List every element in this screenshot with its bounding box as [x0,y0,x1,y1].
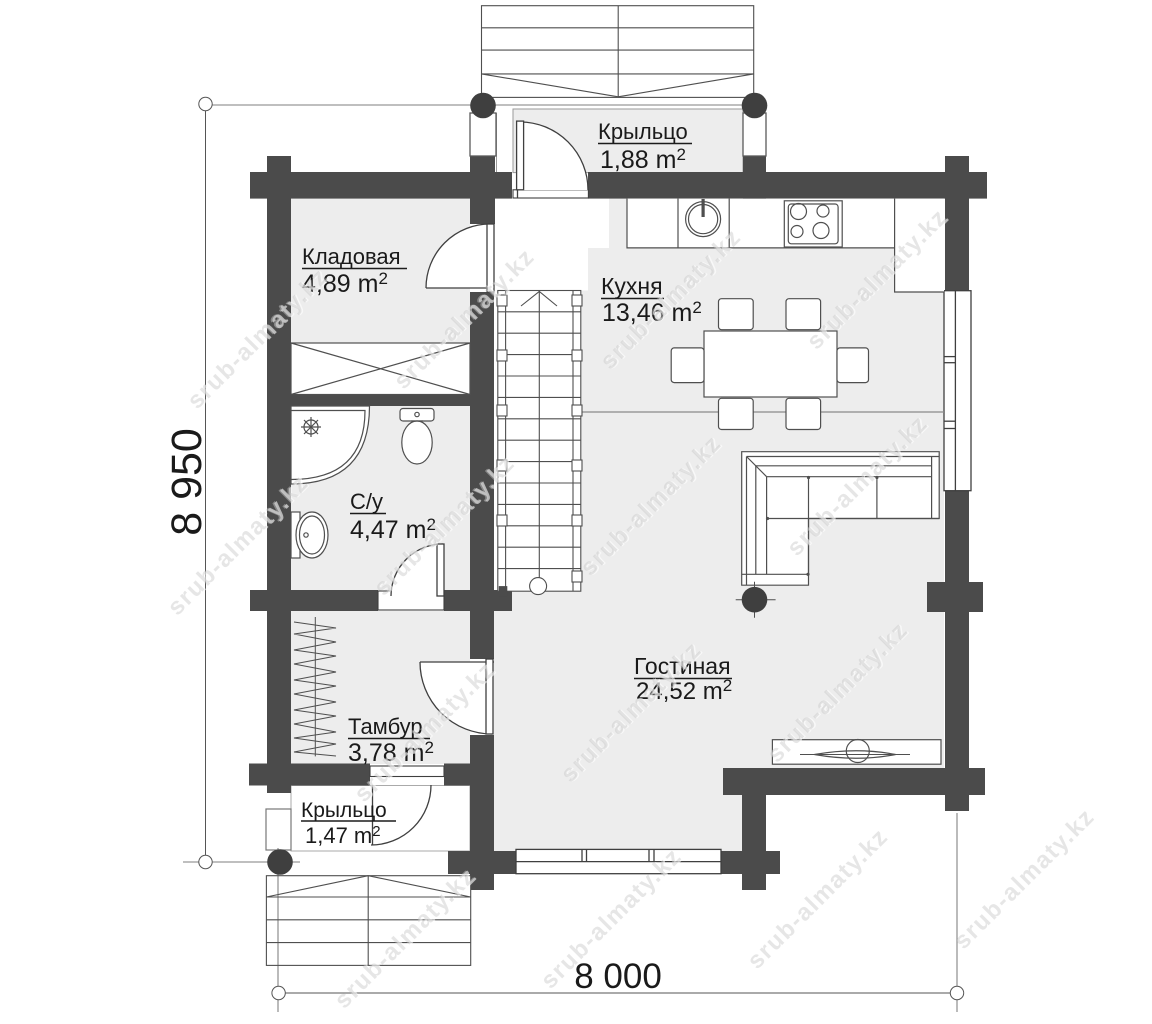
svg-text:8 950: 8 950 [163,428,211,536]
svg-text:С/у: С/у [350,489,383,514]
svg-text:Крыльцо: Крыльцо [598,119,688,144]
svg-text:1,47 m2: 1,47 m2 [305,823,381,848]
svg-text:1,88 m2: 1,88 m2 [600,145,686,174]
svg-text:Кухня: Кухня [601,273,663,299]
